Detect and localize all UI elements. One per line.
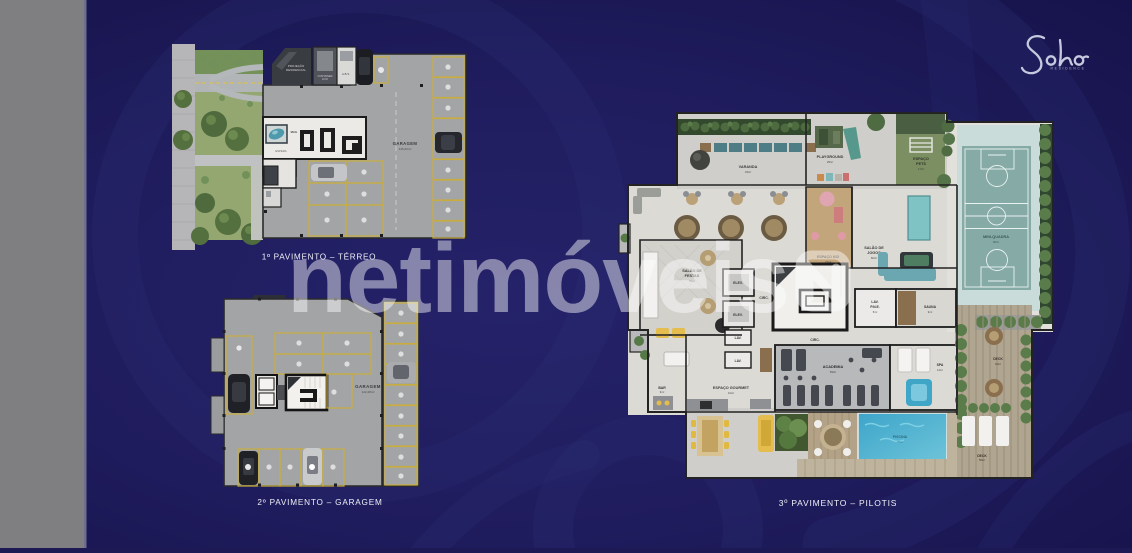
svg-text:SALÃO DE: SALÃO DE [864, 245, 884, 250]
svg-text:5m²: 5m² [873, 310, 878, 314]
svg-text:3º PAVIMENTO – PILOTIS: 3º PAVIMENTO – PILOTIS [779, 498, 897, 508]
svg-text:BAR: BAR [658, 386, 666, 390]
svg-text:2º PAVIMENTO – GARAGEM: 2º PAVIMENTO – GARAGEM [257, 498, 382, 507]
svg-text:SPA: SPA [937, 363, 944, 367]
svg-text:9m²: 9m² [660, 390, 665, 394]
svg-text:RESIDENCIAL: RESIDENCIAL [286, 68, 306, 72]
svg-text:17m²: 17m² [918, 167, 924, 171]
svg-text:RESIDENCE: RESIDENCE [1050, 67, 1085, 71]
svg-text:GARAGEM: GARAGEM [393, 141, 418, 146]
svg-text:MAIL: MAIL [291, 130, 298, 134]
svg-text:SAUNA: SAUNA [924, 305, 937, 309]
svg-text:55m²: 55m² [979, 458, 985, 462]
svg-text:33m²: 33m² [745, 170, 751, 174]
svg-text:MINI-QUADRA: MINI-QUADRA [983, 235, 1009, 239]
svg-text:ESPERA: ESPERA [275, 149, 286, 153]
svg-text:53m²: 53m² [830, 370, 836, 374]
svg-text:LAV.: LAV. [735, 359, 742, 363]
svg-text:DECK: DECK [993, 357, 1003, 361]
svg-text:25m²: 25m² [827, 160, 833, 164]
svg-text:CIRC.: CIRC. [810, 338, 819, 342]
svg-text:ESPAÇO GOURMET: ESPAÇO GOURMET [713, 386, 750, 390]
svg-text:PISCINA: PISCINA [893, 435, 908, 439]
svg-text:A.B.S.: A.B.S. [342, 72, 350, 76]
svg-text:9m²: 9m² [928, 310, 933, 314]
svg-text:GARAGEM: GARAGEM [355, 384, 381, 389]
svg-text:LAV.: LAV. [871, 300, 878, 304]
svg-text:122,28m²: 122,28m² [362, 390, 375, 394]
svg-text:PLAYGROUND: PLAYGROUND [817, 155, 844, 159]
svg-text:PETS: PETS [916, 162, 926, 166]
svg-text:32m²: 32m² [995, 362, 1001, 366]
svg-text:LAV.: LAV. [735, 336, 742, 340]
svg-text:ACADEMIA: ACADEMIA [823, 365, 844, 369]
svg-text:145,00m²: 145,00m² [399, 147, 412, 151]
svg-text:60m²: 60m² [871, 256, 877, 260]
svg-text:12m²: 12m² [937, 368, 943, 372]
svg-text:netimóveis: netimóveis [287, 223, 789, 333]
svg-text:P.N.E.: P.N.E. [870, 305, 879, 309]
svg-text:96m²: 96m² [993, 240, 999, 244]
svg-text:DECK: DECK [977, 454, 987, 458]
svg-text:ESPAÇO: ESPAÇO [913, 157, 929, 161]
svg-text:VARANDA: VARANDA [739, 165, 758, 169]
svg-text:41m²: 41m² [728, 391, 734, 395]
svg-text:LIXO: LIXO [322, 77, 328, 81]
svg-text:75m²: 75m² [897, 440, 903, 444]
